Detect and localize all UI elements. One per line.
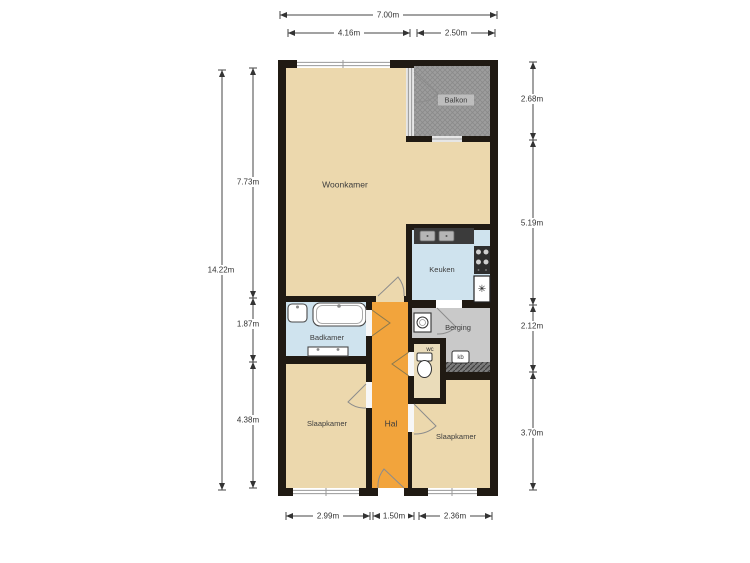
toilet-icon (417, 353, 432, 378)
room-woonkamer-floor-extension (406, 142, 490, 224)
snowflake-glyph: ✳ (478, 284, 486, 295)
svg-text:1.50m: 1.50m (383, 512, 406, 521)
svg-text:4.38m: 4.38m (237, 416, 260, 425)
wc-room: wc (408, 338, 446, 404)
dim-right-top: 2.68m (517, 62, 548, 140)
dim-right-middle: 2.12m (517, 305, 548, 372)
room-badkamer-label: Badkamer (310, 333, 345, 342)
svg-text:1.87m: 1.87m (237, 320, 260, 329)
vanity-sink-icon (308, 347, 348, 356)
room-woonkamer-label: Woonkamer (322, 179, 368, 189)
stove-icon (474, 246, 490, 274)
svg-text:14.22m: 14.22m (208, 266, 235, 275)
window-bottom-right-bedroom (428, 488, 477, 496)
dim-bottom-middle: 1.50m (373, 511, 414, 521)
room-keuken-label: Keuken (429, 265, 454, 274)
balcony-door (432, 136, 462, 142)
washing-machine-icon (414, 313, 431, 332)
dim-top-right: 2.50m (417, 28, 495, 38)
floorplan-canvas: ✳ kb wc (0, 0, 750, 563)
dim-top-total: 7.00m (280, 10, 497, 20)
svg-text:7.73m: 7.73m (237, 178, 260, 187)
floorplan-page: ✳ kb wc (0, 0, 750, 563)
washbasin-icon (288, 304, 307, 322)
svg-text:7.00m: 7.00m (377, 11, 400, 20)
wc-label: wc (425, 347, 433, 353)
glass-partition-balcony (406, 68, 414, 136)
dim-left-total: 14.22m (203, 70, 240, 490)
dim-right-upper: 5.19m (517, 140, 548, 305)
dim-left-lower: 4.38m (233, 362, 263, 488)
svg-text:Balkon: Balkon (445, 95, 468, 104)
kb-label: kb (457, 355, 464, 361)
svg-text:2.36m: 2.36m (444, 512, 467, 521)
svg-text:5.19m: 5.19m (521, 219, 544, 228)
wc-door-gap (408, 352, 414, 376)
room-slaapkamer-left-label: Slaapkamer (307, 419, 348, 428)
dim-top-left: 4.16m (288, 28, 410, 38)
dim-bottom-left: 2.99m (286, 511, 370, 521)
bathtub-icon (313, 303, 366, 326)
dim-left-upper: 7.73m (233, 68, 263, 298)
svg-text:3.70m: 3.70m (521, 429, 544, 438)
room-hal-label: Hal (385, 418, 398, 428)
freezer-icon: ✳ (474, 276, 490, 302)
svg-text:2.50m: 2.50m (445, 29, 468, 38)
room-hal-floor (372, 302, 408, 488)
svg-text:4.16m: 4.16m (338, 29, 361, 38)
room-balkon-label: Balkon (438, 95, 474, 106)
kitchen-counter (414, 228, 474, 244)
svg-text:2.12m: 2.12m (521, 322, 544, 331)
dim-bottom-right: 2.36m (419, 511, 492, 521)
room-slaapkamer-right-label: Slaapkamer (436, 432, 477, 441)
window-top-living (297, 60, 390, 68)
svg-text:2.68m: 2.68m (521, 95, 544, 104)
dim-left-middle: 1.87m (233, 298, 263, 362)
room-berging-label: Berging (445, 323, 471, 332)
svg-text:2.99m: 2.99m (317, 512, 340, 521)
kb-cabinet: kb (452, 351, 469, 363)
dim-right-lower: 3.70m (517, 372, 548, 490)
window-bottom-left-bedroom (293, 488, 359, 496)
